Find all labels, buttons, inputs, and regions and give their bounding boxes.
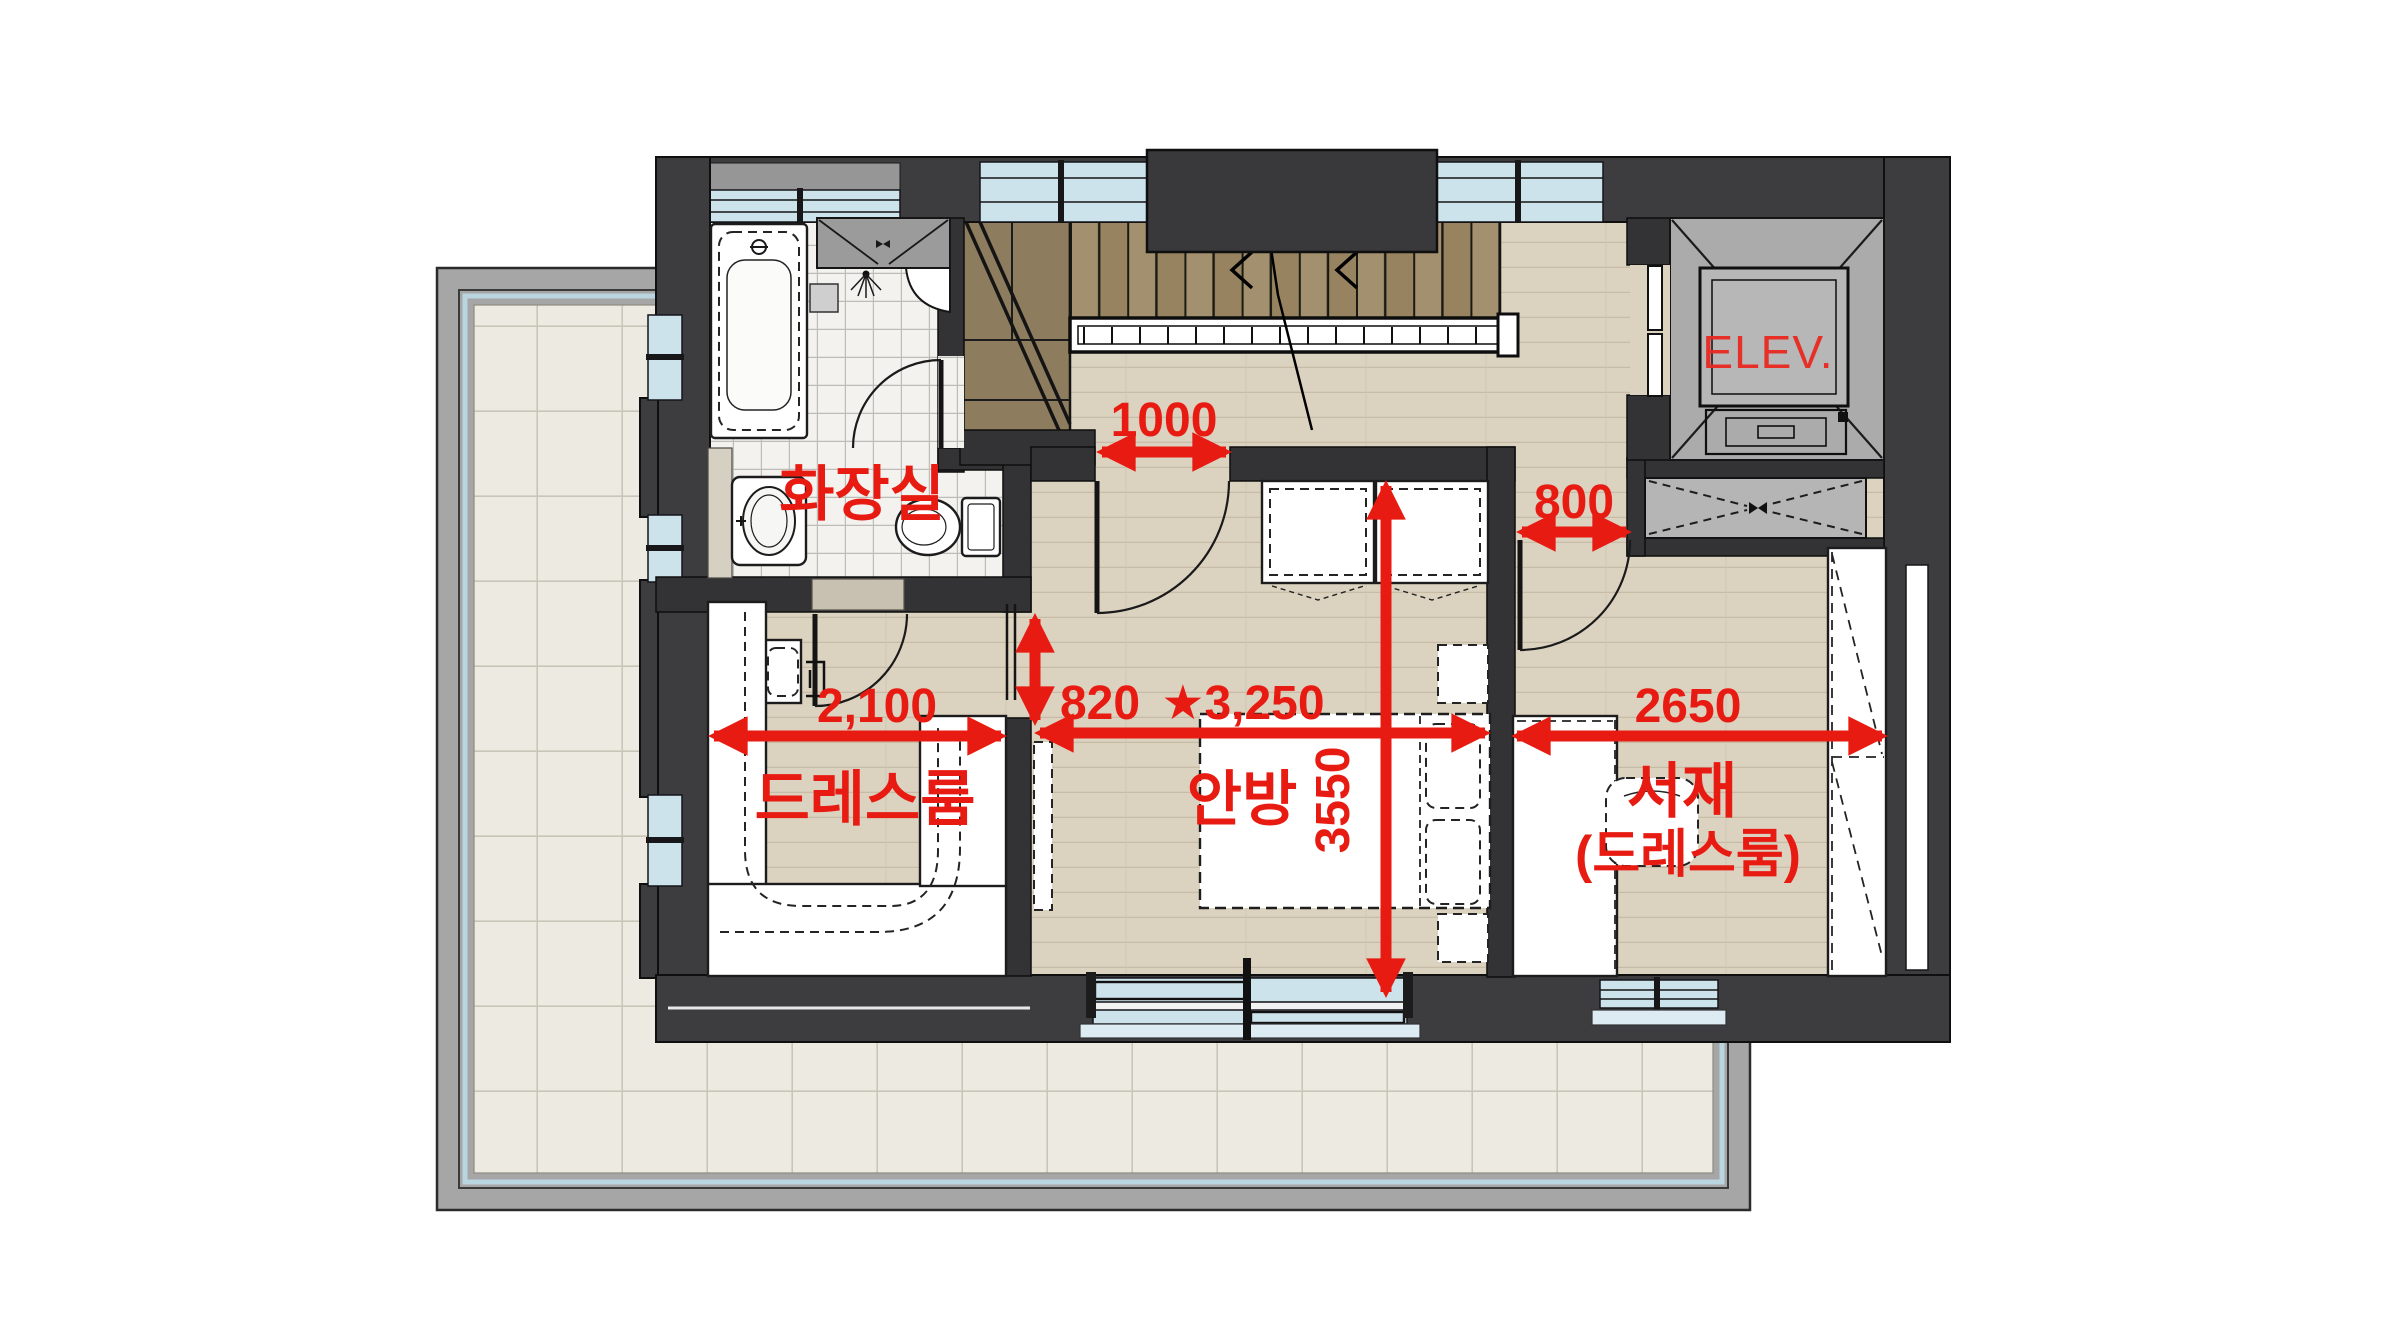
study-wardrobe (1828, 548, 1886, 976)
hall-door-jamb-wall (1031, 447, 1095, 481)
dressroom-label: 드레스룸 (755, 766, 976, 833)
stair-lintel (1147, 150, 1437, 252)
elevator-door-panel (1648, 334, 1662, 396)
wardrobe-bottom (708, 884, 1006, 976)
hall-closet (1645, 478, 1866, 538)
nightstand (1438, 645, 1488, 703)
window-mullion (1243, 958, 1251, 1040)
elevator-west-wall (1627, 395, 1670, 460)
study-sublabel: (드레스룸) (1575, 826, 1801, 884)
floor-drain (810, 284, 838, 312)
nightstand (1438, 914, 1488, 962)
bathtub-basin (727, 260, 791, 410)
floor-plan-page: ELEV. (0, 0, 2382, 1338)
master-bedroom-label: 안방 (1187, 766, 1297, 833)
elevator-west-wall (1627, 218, 1670, 265)
west-wall-pier (640, 398, 658, 517)
spine-wall-lower (1003, 718, 1031, 976)
mosaic-wall-strip (708, 448, 732, 578)
dim-3250: ★3,250 (1161, 677, 1324, 730)
shower-niche (817, 218, 950, 268)
window-mullion (1515, 160, 1521, 222)
bathroom-label: 화장실 (779, 461, 945, 528)
stair-railing-post (1498, 314, 1518, 356)
bed-pillow (1426, 820, 1480, 904)
door-threshold (812, 579, 904, 610)
vanity-stool (768, 648, 798, 696)
bedroom-east-wall (1487, 447, 1515, 977)
east-wall-cavity (1906, 565, 1928, 970)
study-label: 서재 (1627, 758, 1737, 825)
elevator-label: ELEV. (1702, 326, 1833, 378)
stair-railing-balusters (1078, 326, 1507, 344)
wardrobe-left (708, 602, 766, 886)
bedroom-mirror-strip (1034, 742, 1052, 910)
west-wall-pier (640, 884, 658, 978)
dim-2100: 2,100 (817, 680, 937, 733)
dim-800: 800 (1534, 476, 1614, 529)
dim-3550: 3550 (1307, 747, 1360, 854)
dim-1000: 1000 (1111, 394, 1218, 447)
bedroom-closet (1376, 481, 1488, 583)
floor-plan-drawing: ELEV. (0, 0, 2382, 1338)
elevator-door-panel (1648, 266, 1662, 330)
bedroom-closet (1262, 481, 1374, 583)
window-mullion (797, 188, 803, 222)
bedroom-north-wall (1230, 447, 1515, 481)
dim-820: 820 (1060, 677, 1140, 730)
study-window (1592, 977, 1726, 1025)
window-mullion (1058, 160, 1064, 222)
dim-2650: 2650 (1635, 680, 1742, 733)
